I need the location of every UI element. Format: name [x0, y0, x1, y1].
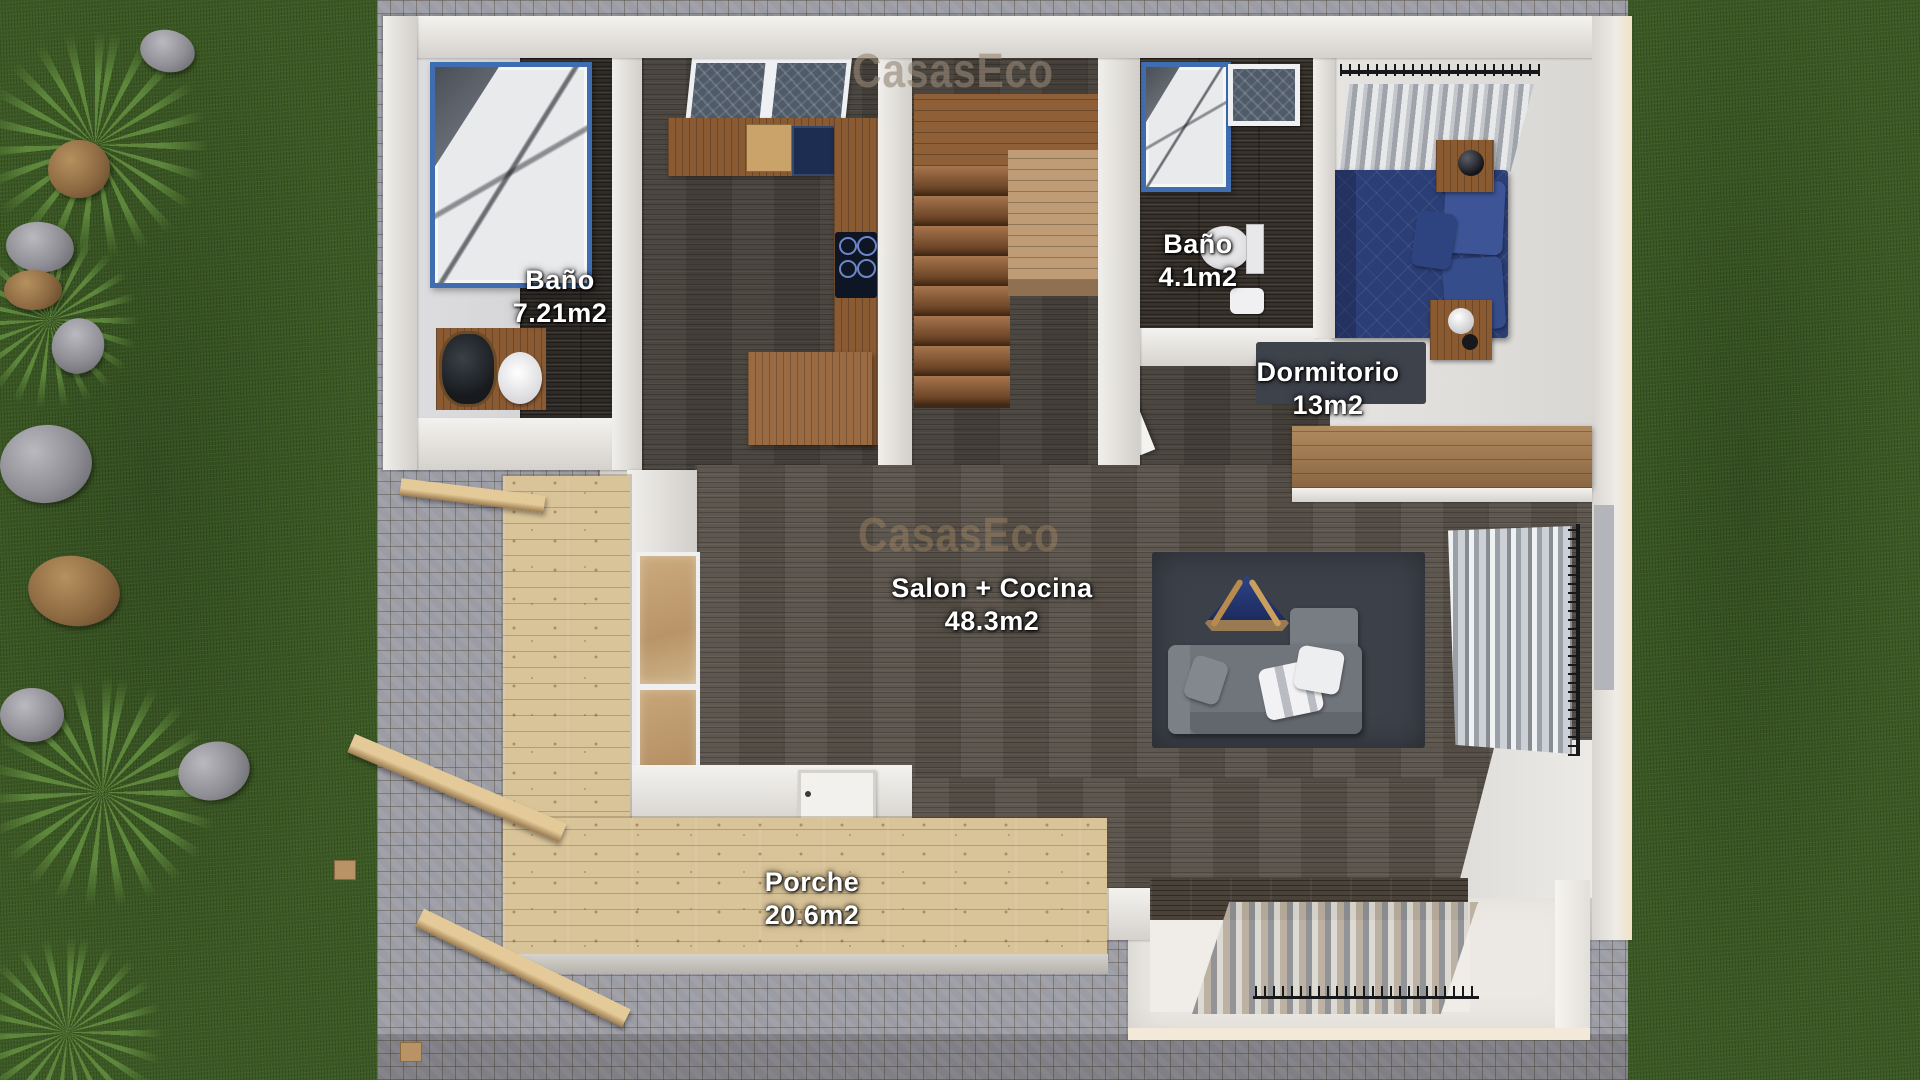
- burner: [857, 236, 877, 256]
- pergola-post-cap: [334, 860, 356, 880]
- wall-bath2-bedroom: [1313, 48, 1335, 338]
- house-wall-east: [1592, 16, 1632, 940]
- stair-tread: [914, 166, 1010, 198]
- sliding-door-pane: [636, 552, 700, 688]
- vanity-mirror: [442, 334, 494, 404]
- east-window-band: [1594, 505, 1614, 690]
- room-name: Salon + Cocina: [862, 572, 1122, 605]
- wall-bath1-kitchen: [612, 40, 642, 470]
- room-name: Baño: [460, 264, 660, 297]
- stair-tread: [914, 196, 1010, 228]
- room-label-bath2: Baño 4.1m2: [1118, 228, 1278, 294]
- stair-tread: [914, 256, 1010, 288]
- entrance-step-lip: [1128, 1028, 1590, 1040]
- stair-tread: [914, 376, 1010, 408]
- porch-edge: [500, 954, 1108, 974]
- vanity-sink: [498, 352, 542, 404]
- house-wall-west: [383, 16, 417, 470]
- curtain-rod-hooks: [1340, 64, 1540, 76]
- grass-right: [1628, 0, 1920, 1080]
- kitchen-island: [748, 352, 872, 445]
- burner: [839, 260, 857, 278]
- room-area: 48.3m2: [862, 605, 1122, 638]
- room-name: Baño: [1118, 228, 1278, 261]
- room-area: 7.21m2: [460, 297, 660, 330]
- cobblestone-bottom-shade: [377, 1034, 1630, 1080]
- rock: [4, 270, 62, 310]
- room-label-bedroom: Dormitorio 13m2: [1218, 356, 1438, 422]
- room-name: Dormitorio: [1218, 356, 1438, 389]
- stair-tread: [914, 346, 1010, 378]
- stair-mid-landing: [1008, 150, 1112, 280]
- bedroom-sideboard: [1292, 426, 1592, 488]
- room-label-salon: Salon + Cocina 48.3m2: [862, 572, 1122, 638]
- entrance-railing: [1253, 996, 1479, 999]
- front-door: [798, 770, 876, 822]
- stair-mid-landing-edge: [1008, 280, 1104, 296]
- room-name: Porche: [712, 866, 912, 899]
- room-label-porch: Porche 20.6m2: [712, 866, 912, 932]
- nightstand-lamp: [1448, 308, 1474, 334]
- pergola-post-cap: [400, 1042, 422, 1062]
- stair-tread: [914, 286, 1010, 318]
- wall-kitchen-stairs: [878, 40, 912, 470]
- living-curtain-hooks: [1568, 524, 1580, 756]
- room-area: 20.6m2: [712, 899, 912, 932]
- room-area: 4.1m2: [1118, 261, 1278, 294]
- cutting-board: [746, 124, 792, 172]
- shower-1: [430, 62, 592, 288]
- floorplan-render: CasasEco CasasEco Baño 7.21m2 Baño 4.1m2…: [0, 0, 1920, 1080]
- skylight-pane: [1233, 69, 1295, 121]
- wall-bedroom-south: [1292, 488, 1592, 502]
- burner: [857, 259, 876, 278]
- nightstand-ornament: [1462, 334, 1478, 350]
- shower-2: [1141, 62, 1231, 192]
- sofa-pillow-white: [1293, 644, 1346, 695]
- room-area: 13m2: [1218, 389, 1438, 422]
- cooktop: [835, 232, 877, 298]
- porch-deck-west: [503, 476, 630, 860]
- wall-bath1-south: [398, 418, 642, 470]
- nightstand-lamp: [1458, 150, 1484, 176]
- shower-glass-lines: [435, 67, 587, 283]
- bathroom-2-skylight: [1228, 64, 1300, 126]
- stair-tread: [914, 316, 1010, 348]
- watermark-top: CasasEco: [852, 44, 1054, 99]
- burner: [839, 237, 857, 255]
- watermark-center: CasasEco: [858, 508, 1060, 563]
- room-label-bath1: Baño 7.21m2: [460, 264, 660, 330]
- living-curtain: [1448, 526, 1572, 754]
- door-handle: [805, 791, 811, 797]
- bed-pillow: [1410, 209, 1457, 270]
- rock: [0, 688, 64, 742]
- entrance-wall-east: [1555, 880, 1590, 1038]
- shower-glass-lines: [1146, 67, 1226, 187]
- stair-tread: [914, 226, 1010, 258]
